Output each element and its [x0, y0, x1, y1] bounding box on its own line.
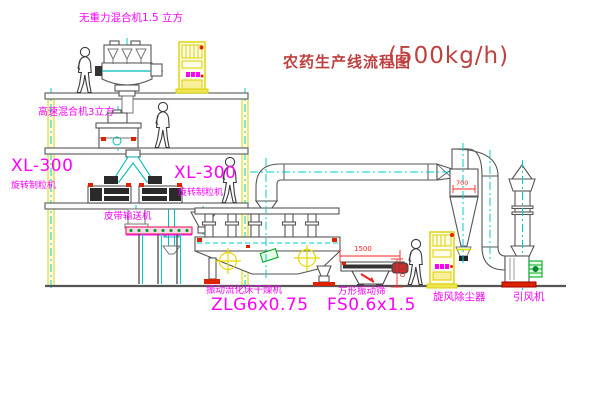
granulator-left-drawing	[88, 183, 131, 203]
label-granulator-left-model: XL-300	[11, 158, 73, 175]
control-cabinet-right	[427, 232, 457, 288]
indicator-light-icon	[450, 233, 454, 237]
label-dryer-model: ZLG6x0.75	[211, 297, 309, 314]
label-cyclone: 旋风除尘器	[433, 292, 486, 303]
control-cabinet-top	[176, 42, 208, 93]
induced-draft-fan-drawing	[502, 256, 542, 287]
label-granulator-right-model: XL-300	[174, 165, 236, 182]
indicator-light-icon	[201, 75, 204, 78]
dimension-cyclone-width: 700	[456, 180, 468, 187]
label-fan: 引风机	[513, 292, 545, 303]
label-gravity-free-mixer: 无重力混合机1.5 立方	[79, 13, 183, 24]
granulator-right-drawing	[139, 183, 182, 203]
button-icon	[196, 72, 200, 77]
label-granulator-right-name: 旋转制粒机	[178, 189, 223, 198]
button-icon	[191, 72, 195, 77]
diagram-canvas: 农药生产线流程图 (500kg/h) 无重力混合机1.5 立方 高速混合机3立方…	[0, 0, 600, 403]
cyclone-drawing	[450, 143, 498, 264]
dimension-screen-length: 1500	[354, 246, 372, 253]
button-icon	[445, 264, 449, 269]
diagram-capacity: (500kg/h)	[388, 45, 509, 68]
label-screen-model: FS0.6x1.5	[327, 297, 416, 314]
splitter-chute	[104, 150, 162, 184]
button-icon	[435, 264, 439, 269]
label-high-speed-mixer: 高速混合机3立方	[38, 108, 114, 118]
worker-figure	[408, 239, 422, 284]
button-icon	[186, 72, 190, 77]
label-belt-conveyor: 皮带输送机	[104, 212, 152, 222]
label-granulator-left-name: 旋转制粒机	[11, 182, 56, 191]
button-icon	[440, 264, 444, 269]
belt-conveyor-drawing	[126, 227, 192, 284]
dimension-screen-height: 540	[398, 264, 405, 277]
indicator-light-icon	[450, 265, 453, 268]
worker-figure	[77, 47, 91, 92]
indicator-light-icon	[200, 46, 204, 50]
worker-figure	[155, 102, 169, 147]
gravity-free-mixer-drawing	[95, 38, 163, 118]
